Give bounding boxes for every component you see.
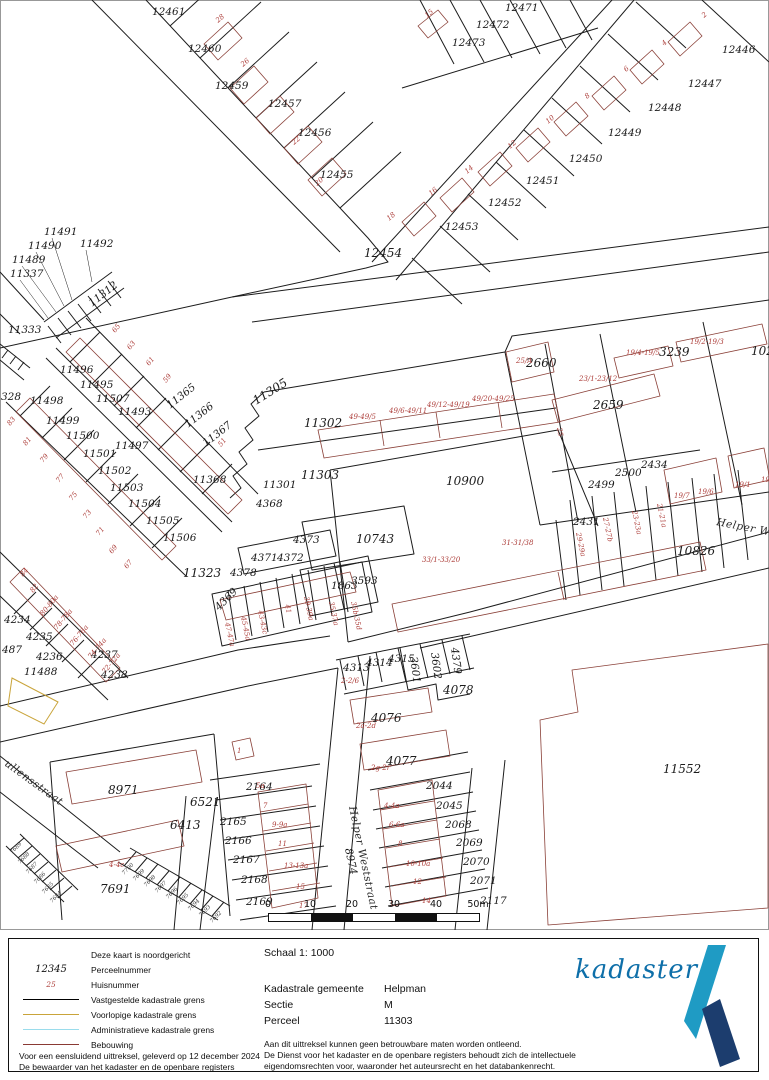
parcel-number: 8971 bbox=[108, 783, 139, 797]
legend-sample bbox=[17, 1029, 85, 1030]
parcel-number: 11491 bbox=[44, 226, 77, 238]
parcel-number: 2165 bbox=[219, 816, 247, 828]
parcel-number: 11323 bbox=[183, 566, 222, 580]
scale-segment bbox=[269, 914, 311, 921]
parcel-number: 12473 bbox=[452, 37, 486, 49]
parcel-number: 4234 bbox=[3, 614, 31, 626]
extract-details: Schaal 1: 1000 Kadastrale gemeenteHelpma… bbox=[264, 947, 564, 1029]
parcel-number: 4372 bbox=[276, 552, 304, 564]
disclaimer-line: eigendomsrechten voor, waaronder het aut… bbox=[264, 1061, 594, 1072]
legend-sample bbox=[17, 1044, 85, 1045]
parcel-number: 2431 bbox=[572, 516, 600, 528]
parcel-number: 11492 bbox=[80, 238, 114, 250]
scale-segment bbox=[353, 914, 395, 921]
legend-row: 25Huisnummer bbox=[17, 977, 257, 992]
detail-row: Perceel11303 bbox=[264, 1013, 564, 1029]
parcel-number: 11505 bbox=[146, 515, 180, 527]
parcel-number: 12459 bbox=[215, 80, 249, 92]
detail-key: Perceel bbox=[264, 1015, 384, 1027]
house-number: 6-6a bbox=[389, 821, 404, 829]
house-number: 9-9a bbox=[272, 821, 287, 829]
parcel-number: 11489 bbox=[12, 254, 46, 266]
parcel-number: 4373 bbox=[292, 534, 320, 546]
parcel-number: 11504 bbox=[128, 498, 161, 510]
detail-row: Kadastrale gemeenteHelpman bbox=[264, 981, 564, 997]
house-number: 12 bbox=[413, 878, 422, 886]
detail-key: Kadastrale gemeente bbox=[264, 983, 384, 995]
parcel-number: 2659 bbox=[592, 398, 624, 412]
parcel-number: 2166 bbox=[224, 835, 252, 847]
kadaster-logo-icon bbox=[650, 943, 740, 1067]
parcel-number: 4378 bbox=[229, 567, 257, 579]
detail-rows: Kadastrale gemeenteHelpmanSectieMPerceel… bbox=[264, 981, 564, 1029]
parcel-number: 2500 bbox=[614, 467, 642, 479]
parcel-number: 2044 bbox=[425, 780, 453, 792]
parcel-number: 12450 bbox=[569, 153, 603, 165]
parcel-number: 4078 bbox=[442, 683, 474, 697]
map-footer: Deze kaart is noordgericht12345Perceelnu… bbox=[8, 938, 759, 1072]
house-number: 19/4-19/5 bbox=[626, 349, 660, 357]
disclaimer-line: De Dienst voor het kadaster en de openba… bbox=[264, 1050, 594, 1061]
house-number: 10-10a bbox=[406, 860, 430, 868]
legend-label: Voorlopige kadastrale grens bbox=[85, 1010, 196, 1020]
parcel-number: 12447 bbox=[688, 78, 722, 90]
parcel-number: 11497 bbox=[115, 440, 149, 452]
parcel-number: 12472 bbox=[476, 19, 510, 31]
house-number: 5a bbox=[256, 782, 265, 790]
parcel-number: 7691 bbox=[100, 882, 131, 896]
cadastral-map: 1246112460124591245712456124551245412473… bbox=[0, 0, 769, 930]
parcel-number: 11302 bbox=[304, 416, 342, 430]
parcel-number: 4236 bbox=[35, 651, 63, 663]
scale-tick: 30 bbox=[388, 899, 400, 910]
parcel-number: 102 bbox=[751, 344, 769, 358]
parcel-number: 2168 bbox=[240, 874, 268, 886]
legend-sample bbox=[17, 999, 85, 1000]
scale-text: Schaal 1: 1000 bbox=[264, 947, 564, 959]
legend-row: Bebouwing bbox=[17, 1037, 257, 1052]
parcel-number: 10826 bbox=[677, 544, 716, 558]
house-number: 4-4c bbox=[108, 861, 124, 869]
legend-sample: 25 bbox=[17, 980, 85, 989]
parcel-number: 12448 bbox=[648, 102, 682, 114]
parcel-number: 10900 bbox=[446, 474, 485, 488]
parcel-number: 11488 bbox=[24, 666, 58, 678]
legend-row: Administratieve kadastrale grens bbox=[17, 1022, 257, 1037]
scale-tick: 40 bbox=[430, 899, 442, 910]
detail-value: Helpman bbox=[384, 983, 426, 995]
issue-statement: Voor een eensluidend uittreksel, gelever… bbox=[19, 1051, 260, 1072]
parcel-number: 11499 bbox=[46, 415, 80, 427]
parcel-number: 12455 bbox=[320, 169, 354, 181]
parcel-number: 11301 bbox=[263, 479, 296, 491]
legend-row: 12345Perceelnummer bbox=[17, 962, 257, 977]
parcel-number: 12457 bbox=[268, 98, 302, 110]
map-canvas: 1246112460124591245712456124551245412473… bbox=[0, 0, 769, 930]
parcel-number: 12461 bbox=[152, 6, 185, 18]
parcel-number: 11506 bbox=[163, 532, 197, 544]
parcel-number: 12456 bbox=[298, 127, 332, 139]
house-number: 13-13a bbox=[284, 862, 308, 870]
parcel-number: 2069 bbox=[455, 837, 483, 849]
house-number: 23/1-23/12 bbox=[578, 375, 618, 383]
house-number: 49/20-49/25 bbox=[471, 395, 515, 403]
parcel-number: 11493 bbox=[118, 406, 152, 418]
house-number: 31-31/38 bbox=[502, 539, 534, 547]
logo-navy-blade bbox=[702, 999, 740, 1067]
detail-value: M bbox=[384, 999, 393, 1011]
parcel-number: 11502 bbox=[98, 465, 132, 477]
house-number: 11 bbox=[278, 840, 287, 848]
kadaster-logo: kadaster bbox=[575, 943, 740, 1067]
issue-line-1: Voor een eensluidend uittreksel, gelever… bbox=[19, 1051, 260, 1062]
legend-label: Vastgestelde kadastrale grens bbox=[85, 995, 205, 1005]
scale-tick: 20 bbox=[346, 899, 358, 910]
parcel-number: 11501 bbox=[83, 448, 116, 460]
house-number: 49/6-49/11 bbox=[388, 407, 427, 415]
parcel-number: 4371 bbox=[250, 552, 278, 564]
parcel-number: 12454 bbox=[364, 246, 402, 260]
parcel-number: 2434 bbox=[640, 459, 668, 471]
detail-row: SectieM bbox=[264, 997, 564, 1013]
parcel-number: 487 bbox=[1, 644, 22, 656]
parcel-number: 11500 bbox=[66, 430, 100, 442]
house-number: 4-4a bbox=[383, 802, 399, 810]
parcel-number: 6521 bbox=[190, 795, 221, 809]
house-number: 1 bbox=[237, 747, 241, 755]
house-number: 19/2-19/3 bbox=[690, 338, 724, 346]
house-number: 19/1 bbox=[735, 481, 751, 489]
legend-sample: 12345 bbox=[17, 964, 85, 975]
parcel-number: 2071 bbox=[469, 875, 497, 887]
house-number: 8 bbox=[398, 840, 403, 848]
legend: Deze kaart is noordgericht12345Perceelnu… bbox=[17, 947, 257, 1052]
parcel-number: 2499 bbox=[587, 479, 615, 491]
detail-value: 11303 bbox=[384, 1015, 412, 1027]
scale-segment bbox=[437, 914, 479, 921]
kadaster-map-extract: { "map": { "labels": [ {"t":"12461","x":… bbox=[0, 0, 769, 1080]
parcel-number: 2167 bbox=[232, 854, 260, 866]
legend-row: Voorlopige kadastrale grens bbox=[17, 1007, 257, 1022]
scale-bar-ticks: 01020304050m bbox=[250, 899, 510, 911]
house-number: 2a-2d bbox=[355, 722, 376, 730]
parcel-number: 12449 bbox=[608, 127, 642, 139]
disclaimer: Aan dit uittreksel kunnen geen betrouwba… bbox=[264, 1039, 594, 1072]
parcel-number: 11498 bbox=[30, 395, 64, 407]
parcel-number: 12460 bbox=[188, 43, 222, 55]
parcel-number: 12452 bbox=[488, 197, 522, 209]
scale-segment bbox=[395, 914, 437, 921]
legend-row: Vastgestelde kadastrale grens bbox=[17, 992, 257, 1007]
scale-segment bbox=[311, 914, 353, 921]
house-number: 33/1-33/20 bbox=[422, 556, 461, 564]
parcel-number: 12453 bbox=[445, 221, 479, 233]
detail-key: Sectie bbox=[264, 999, 384, 1011]
house-number: 7 bbox=[263, 802, 268, 810]
house-number: 19/7 bbox=[674, 492, 690, 500]
legend-label: Bebouwing bbox=[85, 1040, 133, 1050]
parcel-number: 6413 bbox=[170, 818, 201, 832]
house-number: 19/6 bbox=[698, 488, 714, 496]
parcel-number: 12446 bbox=[722, 44, 756, 56]
parcel-number: 11507 bbox=[96, 393, 130, 405]
parcel-number: 11496 bbox=[60, 364, 94, 376]
house-number: 19 bbox=[761, 476, 769, 484]
legend-row: Deze kaart is noordgericht bbox=[17, 947, 257, 962]
parcel-number: 2045 bbox=[435, 800, 463, 812]
parcel-number: 11368 bbox=[193, 474, 227, 486]
parcel-number: 12471 bbox=[505, 2, 538, 14]
parcel-number: 3593 bbox=[351, 575, 378, 587]
house-number: 2g-2r bbox=[370, 764, 391, 772]
parcel-number: 2068 bbox=[444, 819, 472, 831]
parcel-number: 11333 bbox=[8, 324, 42, 336]
parcel-number: 3239 bbox=[659, 345, 690, 359]
legend-label: Perceelnummer bbox=[85, 965, 151, 975]
house-number: 49/12-49/19 bbox=[426, 401, 470, 409]
house-number: 15 bbox=[296, 883, 305, 891]
disclaimer-line: Aan dit uittreksel kunnen geen betrouwba… bbox=[264, 1039, 594, 1050]
scale-tick: 10 bbox=[304, 899, 316, 910]
parcel-number: 4368 bbox=[255, 498, 283, 510]
legend-label: Administratieve kadastrale grens bbox=[85, 1025, 214, 1035]
scale-bar-segments bbox=[268, 913, 480, 922]
parcel-number: 11552 bbox=[663, 762, 701, 776]
house-number: 25/A bbox=[515, 357, 532, 365]
legend-label: Deze kaart is noordgericht bbox=[85, 950, 190, 960]
parcel-number: 11303 bbox=[301, 468, 340, 482]
scale-tick: 0 bbox=[265, 899, 271, 910]
parcel-number: 11495 bbox=[80, 379, 114, 391]
house-number: 49-49/5 bbox=[348, 413, 377, 421]
house-number: 2-2/6 bbox=[340, 677, 360, 685]
parcel-number: 11503 bbox=[110, 482, 144, 494]
parcel-number: 12451 bbox=[526, 175, 559, 187]
parcel-number: 328 bbox=[1, 391, 21, 403]
issue-line-2: De bewaarder van het kadaster en de open… bbox=[19, 1062, 260, 1073]
legend-label: Huisnummer bbox=[85, 980, 139, 990]
scale-bar: 01020304050m bbox=[250, 899, 510, 927]
parcel-number: 11490 bbox=[28, 240, 62, 252]
parcel-number: 10743 bbox=[356, 532, 395, 546]
parcel-number: 2070 bbox=[462, 856, 490, 868]
parcel-number: 4235 bbox=[25, 631, 53, 643]
parcel-number: 11337 bbox=[10, 268, 44, 280]
scale-tick: 50m bbox=[467, 899, 488, 910]
legend-sample bbox=[17, 1014, 85, 1015]
